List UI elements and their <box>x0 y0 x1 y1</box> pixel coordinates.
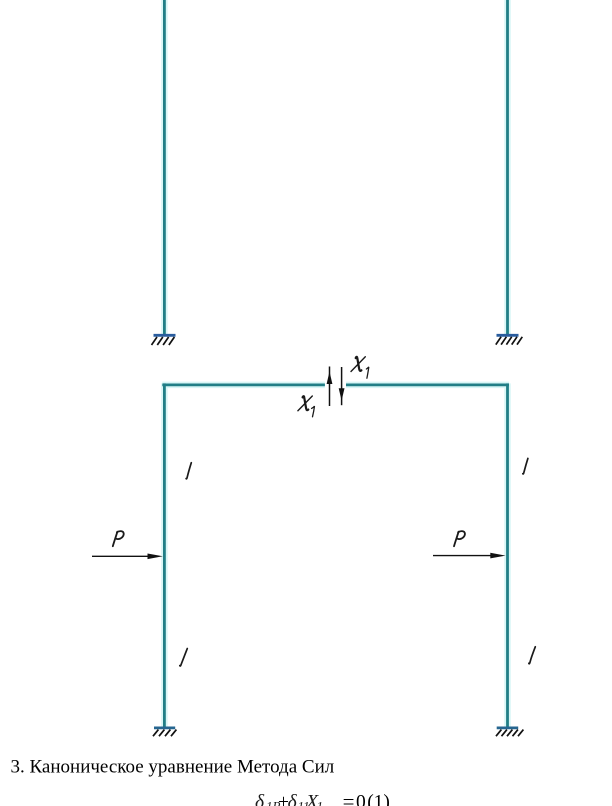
svg-text:=: = <box>343 790 355 806</box>
svg-text:δ: δ <box>255 792 265 806</box>
svg-text:(1): (1) <box>367 792 390 806</box>
svg-text:0: 0 <box>356 792 366 806</box>
svg-text:δ: δ <box>288 792 298 806</box>
svg-text:3. Каноническое уравнение Мето: 3. Каноническое уравнение Метода Сил <box>11 756 335 777</box>
svg-text:1: 1 <box>317 799 324 806</box>
